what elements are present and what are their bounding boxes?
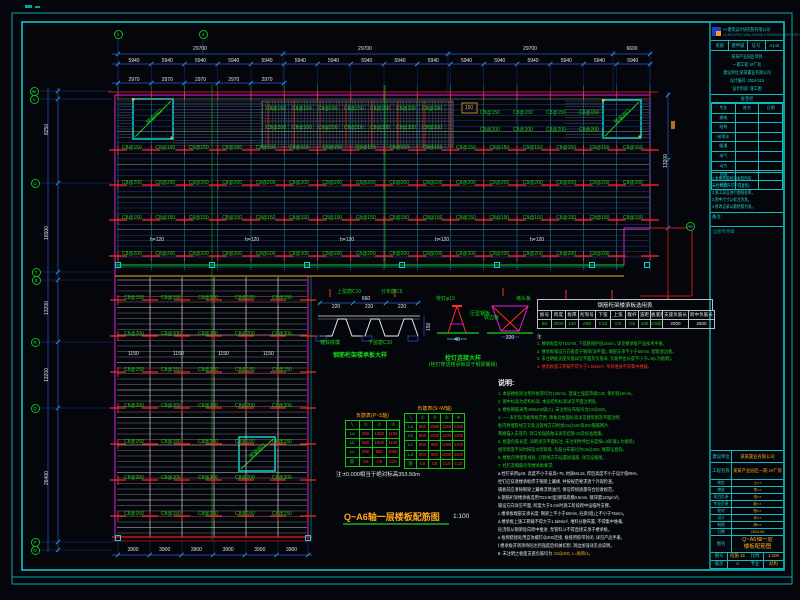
kv-value: 张×× — [732, 495, 783, 500]
sign-cell — [759, 151, 783, 161]
annotation-text: C8@150 — [579, 111, 599, 116]
title-block: ××建筑设计研究院有限公司 XX ARCHITECTURAL DESIGN & … — [711, 23, 783, 569]
annotation-text: C8@200 — [235, 476, 255, 481]
notice-line: 2.施工前应进行图纸会审。 — [712, 189, 772, 196]
annotation-text: C8@200 — [189, 252, 209, 257]
sign-cell: 姓名 — [735, 104, 759, 114]
annotation-text: 13200 — [45, 301, 50, 315]
grid-bubble: A6 — [686, 222, 695, 231]
note-line: 6. 楼板内预埋管线处, 沿管线方向设置加强筋, 详见设备图。 — [498, 454, 693, 462]
annotation-text: C8@150 — [122, 146, 142, 151]
sign-cell — [735, 113, 759, 123]
annotation-text: C8@150 — [272, 296, 292, 301]
table-cell: 1200 — [453, 432, 465, 441]
annotation-text: C8@200 — [489, 181, 509, 186]
annotation-text: C8@150 — [122, 216, 142, 221]
annotation-text: 5940 — [627, 59, 638, 64]
table-cell: 1050 — [373, 430, 387, 439]
annotation-text: 3900 — [127, 548, 138, 553]
kv-row: 校对钱×× — [711, 508, 783, 515]
annotation-text: C8@150 — [198, 440, 218, 445]
annotation-text: C8@200 — [124, 332, 144, 337]
table-cell: La — [346, 430, 360, 439]
annotation-text: C8@150 — [523, 146, 543, 151]
grid-bubble: R — [31, 338, 40, 347]
table-cell: 1150 — [453, 441, 465, 450]
note-line: f.楼承板开洞须待砼达到强度后机械切割, 洞边加强详见总说明。 — [498, 542, 693, 550]
kv-label: 设计 — [711, 515, 732, 521]
kv-value: 李×× — [732, 488, 783, 493]
annotation-text: 8250 — [45, 124, 50, 135]
table-cell: 桁架号 — [579, 311, 596, 320]
annotation-text: C8@150 — [222, 216, 242, 221]
annotation-text: C8@200 — [198, 332, 218, 337]
note-line: 4. 楼承板施工荷载不得大于1.5kN/m², 吊装堆放不得集中堆载。 — [537, 363, 721, 370]
table-cell: ② — [373, 421, 387, 430]
table-cell: 跨度 — [552, 311, 566, 320]
annotation-text: C8@200 — [122, 181, 142, 186]
note-line: c.楼承板端部支承长度: 钢梁上不小于50mm, 砼梁(墙)上不小于75mm。 — [498, 510, 693, 518]
annotation-text: 3900 — [223, 548, 234, 553]
bottom-cell-label: 专业 — [747, 561, 764, 568]
annotation-text: C8@200 — [356, 252, 376, 257]
annotation-text: C8@200 — [122, 252, 142, 257]
note-line: 1. 楼承板型号TD3-90, 下弦筋保护层15mm, 详见楼承板产品技术手册。 — [537, 340, 721, 347]
annotation-text: 栓钉φ19 — [436, 297, 455, 302]
table-cell: 950 — [373, 448, 387, 457]
annotation-text: C8@150 — [623, 146, 643, 151]
table-cell: 1000 — [441, 450, 453, 459]
kv-label: 项目负责 — [711, 494, 732, 500]
owner-row: 建设单位 某某置业有限公司 — [711, 451, 783, 463]
kv-label: 审核 — [711, 487, 732, 493]
note-line: 铺板前应清除钢梁上翼缘浮锈油污, 保证焊接质量符合验收规范。 — [498, 486, 693, 494]
note-line: 3. 楼板钢筋采用HRB400级(C), 未注明分布筋均为C8@250。 — [498, 406, 693, 414]
annotation-text: C8@150 — [222, 146, 242, 151]
sign-cell: 动力 — [712, 161, 736, 171]
annotation-text: C8@150 — [318, 107, 338, 112]
notice-lines: 1.本图纸版权归本院所有, 未经书面许可不得复制。2.施工前应进行图纸会审。3.… — [711, 173, 783, 213]
annotation-text: C8@150 — [590, 146, 610, 151]
notice-line: 3.图中尺寸以标注为准。 — [712, 196, 772, 203]
annotation-text: C8@200 — [556, 181, 576, 186]
table-cell: 1100 — [386, 439, 400, 448]
annotation-text: C8@200 — [289, 181, 309, 186]
sign-cell — [735, 142, 759, 152]
table-cell: 3000 — [552, 319, 566, 328]
annotation-text: C8@200 — [256, 181, 276, 186]
annotation-text: C8@150 — [370, 107, 390, 112]
kv-row: 专业负责赵×× — [711, 501, 783, 508]
table-cell: 800 — [417, 450, 429, 459]
stud-detail-subcaption: (栓钉穿透楼承板焊于钢梁翼缘) — [429, 361, 497, 368]
bottom-cell-label: 图号 — [711, 553, 728, 560]
table-cell: C8@200 — [651, 319, 663, 328]
annotation-text: C8@200 — [389, 252, 409, 257]
annotation-text: C8@150 — [155, 146, 175, 151]
kv-label: 日期 — [711, 529, 732, 535]
table-cell: 1150 — [441, 423, 453, 432]
table-cell: 850 — [359, 448, 373, 457]
grid-bubble: 4 — [199, 30, 208, 39]
annotation-text: C8@150 — [322, 146, 342, 151]
annotation-text: 29700 — [193, 47, 207, 52]
figure-name-line1: Q~A6轴一层 — [732, 537, 783, 544]
bottom-cell-value: A — [728, 561, 747, 568]
kv-rows: 审定王××审核李××项目负责张××专业负责赵××校对钱××设计孙××制图周××日… — [711, 480, 783, 536]
table-cell: 1000 — [429, 432, 441, 441]
figure-name-row: 图名 Q~A6轴一层 楼板配筋图 — [711, 536, 783, 553]
sign-cell — [759, 113, 783, 123]
note-line: 板内预埋管线交叉处沿管线方向附加C6@150宽500钢筋网片, — [498, 422, 693, 430]
annotation-text: 收边板 — [484, 316, 499, 321]
annotation-text: C8@150 — [623, 216, 643, 221]
annotation-text: C8@150 — [189, 216, 209, 221]
annotation-text: C8@150 — [396, 107, 416, 112]
annotation-text: C8@150 — [289, 146, 309, 151]
kv-row: 项目负责张×× — [711, 494, 783, 501]
annotation-text: 1150 — [128, 352, 139, 357]
annotation-text: 660 — [362, 297, 370, 302]
sign-cell: 给排水 — [712, 132, 736, 142]
annotation-text: C8@150 — [124, 512, 144, 517]
annotation-text: C8@150 — [546, 111, 566, 116]
annotation-text: C8@200 — [161, 332, 181, 337]
note-line: d.楼承板上施工荷载不得大于1.5kN/m², 堆料分散布置, 不得集中堆载, — [498, 518, 693, 526]
table-cell: ① — [359, 421, 373, 430]
company-logo-icon — [712, 27, 721, 36]
annotation-text: C8@200 — [289, 252, 309, 257]
annotation-text: 5940 — [594, 59, 605, 64]
annotation-text: 5940 — [428, 59, 439, 64]
table-cell: 1000 — [373, 439, 387, 448]
table-cell: 950 — [429, 441, 441, 450]
kv-value: 钱×× — [732, 509, 783, 514]
annotation-text: 220 — [332, 305, 340, 310]
table-cell: 筋 — [346, 457, 360, 466]
kv-row: 制图周×× — [711, 522, 783, 529]
annotation-text: C8@150 — [422, 107, 442, 112]
note-line: 8. 未注明之板面支座负筋均为 C8@200, L=板跨/4。 — [498, 550, 693, 558]
table-cell: Ld — [405, 450, 417, 459]
annotation-text: C8@200 — [222, 181, 242, 186]
annotation-text: C8@200 — [523, 252, 543, 257]
neg-table-title: 负筋表(P~S轴) — [345, 412, 400, 419]
annotation-text: C8@200 — [222, 252, 242, 257]
grid-bubble: N — [31, 546, 40, 555]
table-cell: ③ — [386, 421, 400, 430]
table-ticks — [566, 290, 668, 299]
annotation-text: 5940 — [527, 59, 538, 64]
annotation-text: C8@200 — [396, 126, 416, 131]
table-cell: 900 — [429, 450, 441, 459]
annotation-text: C8@200 — [480, 128, 500, 133]
annotation-text: 上弦筋C10 — [337, 290, 361, 295]
kv-label: 校对 — [711, 508, 732, 514]
annotation-text: 5940 — [295, 59, 306, 64]
annotation-text: 2970 — [228, 78, 239, 83]
table-cell: ╲ — [346, 421, 360, 430]
annotation-text: C8@200 — [155, 181, 175, 186]
annotation-text: C8@200 — [292, 126, 312, 131]
annotation-text: C8@150 — [423, 146, 443, 151]
drawing-scale: 1:100 — [453, 513, 469, 520]
table-cell: C10 — [386, 457, 400, 466]
annotation-text: 29700 — [523, 47, 537, 52]
annotation-text: C8@200 — [546, 128, 566, 133]
annotation-text: C8@200 — [389, 181, 409, 186]
kv-row: 日期2024.06 — [711, 529, 783, 536]
annotation-text: 5940 — [228, 59, 239, 64]
annotation-text: C8@150 — [198, 512, 218, 517]
annotation-text: C8@150 — [198, 368, 218, 373]
annotation-text: C8@150 — [124, 296, 144, 301]
table-cell: Lc — [346, 448, 360, 457]
sign-cell — [759, 142, 783, 152]
annotation-text: 5940 — [461, 59, 472, 64]
annotation-text: C8@150 — [456, 216, 476, 221]
annotation-text: C8@150 — [556, 146, 576, 151]
annotation-text: 5940 — [328, 59, 339, 64]
kv-label: 专业负责 — [711, 501, 732, 507]
annotation-text: 220 — [506, 336, 514, 341]
annotation-text: C8@200 — [272, 476, 292, 481]
table-cell: Lb — [405, 432, 417, 441]
neg-rebar-table: ╲①②③La95010501150Lb90010001100Lc85095010… — [345, 420, 400, 467]
annotation-text: 3900 — [191, 548, 202, 553]
annotation-text: C8@150 — [272, 512, 292, 517]
note-line: 注: — [537, 333, 721, 340]
annotation-text: C8@200 — [272, 404, 292, 409]
annotation-text: C8@150 — [456, 146, 476, 151]
project-info-line: 设计编号: 2024-015 — [715, 77, 780, 85]
note-line: a.栓钉采用φ19, 高度不小于波高+75, 材质ML15, 焊后高度不小于设计… — [498, 470, 693, 478]
grid-bubble: S — [32, 276, 41, 285]
sign-cell — [759, 132, 783, 142]
annotation-text: 5940 — [195, 59, 206, 64]
annotation-text: 下弦筋C10 — [368, 341, 392, 346]
note-line: 相邻跨度不同时按较大跨取值, 负筋分布筋均为C8@250, 端部设直钩。 — [498, 446, 693, 454]
table-cell: Lb — [346, 439, 360, 448]
table-cell: ② — [429, 414, 441, 423]
table-cell: 1100 — [453, 450, 465, 459]
annotation-text: C8@200 — [590, 181, 610, 186]
note-line: 铺设方向详见平面, 跨度大于3.0m时施工阶段跨中设临时支撑。 — [498, 502, 693, 510]
annotation-text: C8@150 — [256, 146, 276, 151]
annotation-text: 1150 — [173, 352, 184, 357]
selection-table-notes: 注:1. 楼承板型号TD3-90, 下弦筋保护层15mm, 详见楼承板产品技术手… — [537, 333, 737, 370]
annotation-text: 220 — [365, 305, 373, 310]
kv-row: 审核李×× — [711, 487, 783, 494]
annotation-text: 26400 — [45, 471, 50, 485]
table-cell: 板号 — [538, 311, 552, 320]
selection-table: 板号跨度板厚桁架号下弦上弦腹杆波距板底筋支座负筋长跨中负筋长B13000120A… — [537, 310, 715, 329]
annotation-text: C8@200 — [556, 252, 576, 257]
stamp-label: 出图专用章 — [713, 229, 734, 234]
annotation-text: C8@200 — [161, 476, 181, 481]
annotation-text: 3900 — [254, 548, 265, 553]
kv-value: 周×× — [732, 523, 783, 528]
table-cell: 波距 — [639, 311, 651, 320]
note-line: e.板侧搭接处用自攻螺钉@300连接, 板缝用胶带封闭, 详见产品手册。 — [498, 534, 693, 542]
annotation-text: C8@200 — [322, 181, 342, 186]
table-cell: Lc — [405, 441, 417, 450]
annotation-text: C8@150 — [161, 512, 181, 517]
table-cell: 1250 — [453, 423, 465, 432]
annotation-text: C8@150 — [389, 216, 409, 221]
notice-line: 4.修改记录以最终版为准。 — [712, 203, 772, 210]
annotation-text: C8@200 — [590, 252, 610, 257]
table-cell: C8 — [359, 457, 373, 466]
annotation-text: C8@200 — [256, 252, 276, 257]
table-cell: 腹杆 — [626, 311, 639, 320]
annotation-text: C8@150 — [198, 296, 218, 301]
annotation-text: 5940 — [128, 59, 139, 64]
annotation-text: C8@150 — [289, 216, 309, 221]
table-cell: ① — [417, 414, 429, 423]
project-info-line: 一期工程 1#厂房 — [715, 61, 780, 69]
sign-cell: 日期 — [759, 104, 783, 114]
bottom-cell: 图号结施-15 — [711, 553, 747, 561]
stamp-area: 出图专用章 — [711, 227, 783, 451]
project-row: 工程名称 某某产业园区一期 1#厂房 — [711, 463, 783, 480]
figure-name-line2: 楼板配筋图 — [732, 544, 783, 551]
annotation-text: C8@150 — [423, 216, 443, 221]
sign-section: 会签栏 专业姓名日期建筑结构给排水暖通电气动力总图经济 — [711, 95, 783, 173]
annotation-text: 5940 — [494, 59, 505, 64]
annotation-text: C8@200 — [198, 476, 218, 481]
annotation-text: C8@200 — [189, 181, 209, 186]
table-cell: 板底筋 — [651, 311, 663, 320]
annotation-text: h=120 — [150, 238, 164, 243]
annotation-text: C8@200 — [456, 252, 476, 257]
elevation-note: 注:±0.000相当于绝对标高353.50m — [336, 470, 420, 478]
kv-row: 审定王×× — [711, 480, 783, 487]
annotation-text: 40 — [454, 338, 460, 343]
annotation-text: 150 — [465, 106, 473, 111]
kv-value: 赵×× — [732, 502, 783, 507]
table-cell: 1050 — [386, 448, 400, 457]
table-cell: C8 — [417, 459, 429, 468]
sign-cell: 专业 — [712, 104, 736, 114]
annotation-text: C8@150 — [556, 216, 576, 221]
annotation-text: C8@150 — [161, 368, 181, 373]
annotation-text: C8@150 — [489, 216, 509, 221]
table-cell: ③ — [441, 414, 453, 423]
table-cell: 筋 — [405, 459, 417, 468]
annotation-text: 分布筋C6 — [381, 290, 402, 295]
table-cell: A90 — [579, 319, 596, 328]
annotation-text: C8@150 — [272, 368, 292, 373]
table-cell: 1100 — [441, 432, 453, 441]
bottom-cells: 图号结施-15比例1:100版次A专业结构 — [711, 553, 783, 569]
annotation-text: C8@150 — [292, 107, 312, 112]
note-line: 3. 未注明板支座负筋详见平面及负筋表, 负筋伸出长度不小于L/4(L为板跨)。 — [537, 355, 721, 362]
notes-header: 说明: — [498, 378, 710, 388]
note-line: 栓钉应穿透楼承板焊于钢梁上翼缘, 并按规范要求逐个外观检查。 — [498, 478, 693, 486]
annotation-text: C8@150 — [235, 296, 255, 301]
annotation-text: C8@200 — [266, 126, 286, 131]
annotation-text: C8@150 — [124, 440, 144, 445]
annotation-text: 2970 — [195, 78, 206, 83]
annotation-text: 5940 — [261, 59, 272, 64]
annotation-text: 2970 — [162, 78, 173, 83]
annotation-text: C8@200 — [579, 128, 599, 133]
bottom-cell-value: 结施-15 — [728, 553, 747, 560]
annotation-text: 5940 — [561, 59, 572, 64]
annotation-text: C8@200 — [523, 181, 543, 186]
annotation-text: 2970 — [261, 78, 272, 83]
notice-line: 未经书面许可不得复制。 — [712, 182, 772, 189]
annotation-text: h=120 — [435, 238, 449, 243]
certificate-cell: A142 — [766, 41, 783, 50]
table-cell: C8 — [429, 459, 441, 468]
note-line: 7. 栓钉及钢筋桁架楼承板要求: — [498, 462, 693, 470]
annotation-text: C8@150 — [523, 216, 543, 221]
annotation-text: 29700 — [358, 47, 372, 52]
table-cell: 1050 — [429, 423, 441, 432]
annotation-text: C8@200 — [423, 181, 443, 186]
table-cell: 上弦 — [611, 311, 626, 320]
annotation-text: C8@200 — [356, 181, 376, 186]
annotation-text: C8@150 — [480, 111, 500, 116]
deck-selection-table: 钢筋桁架楼承板选用表 板号跨度板厚桁架号下弦上弦腹杆波距板底筋支座负筋长跨中负筋… — [537, 299, 713, 329]
annotation-text: 220 — [398, 305, 406, 310]
project-info: 某某产业园区项目一期工程 1#厂房建设单位:某某置业有限公司设计编号: 2024… — [711, 51, 783, 95]
table-cell: 950 — [359, 430, 373, 439]
grid-bubble: Q — [31, 404, 40, 413]
annotation-text: C8@150 — [322, 216, 342, 221]
note-line: b.钢筋桁架楼承板选用TD3-90型(镀锌底模0.5mm, 镀锌量120g/m²… — [498, 494, 693, 502]
table-cell: B1 — [538, 319, 552, 328]
table-cell: 支座负筋长 — [663, 311, 689, 320]
project-info-line: 设计阶段: 施工图 — [715, 85, 780, 93]
project-info-line: 某某产业园区项目 — [715, 53, 780, 61]
annotation-text: 1150 — [218, 352, 229, 357]
annotation-text: C8@200 — [155, 252, 175, 257]
table-cell: 850 — [417, 441, 429, 450]
annotation-text: C8@150 — [344, 107, 364, 112]
certificate-cell: 证号 — [748, 41, 766, 50]
annotation-text: C8@200 — [124, 476, 144, 481]
cad-sheet: C8@150C8@150C8@150C8@150C8@150C8@150C8@1… — [0, 0, 800, 600]
kv-row: 设计孙×× — [711, 515, 783, 522]
table-cell: 900 — [359, 439, 373, 448]
annotation-text: C8@150 — [235, 440, 255, 445]
note-line: 两端锚入支座内, 洞口加强筋做法详见结施-02及标准图集。 — [498, 430, 693, 438]
sign-title: 会签栏 — [711, 95, 783, 103]
annotation-text: C8@150 — [256, 216, 276, 221]
company-name-en: XX ARCHITECTURAL DESIGN & RESEARCH INSTI… — [723, 33, 800, 37]
project-info-line: 建设单位:某某置业有限公司 — [715, 69, 780, 77]
annotation-text: C8@200 — [318, 126, 338, 131]
table-cell: 1150 — [386, 430, 400, 439]
sign-cell — [759, 123, 783, 133]
grid-bubble: U — [31, 179, 40, 188]
table-cell: 950 — [417, 423, 429, 432]
annotation-text: 6600 — [626, 47, 637, 52]
annotation-text: C8@200 — [235, 332, 255, 337]
table-cell: 120 — [566, 319, 579, 328]
table-cell: ╲ — [405, 414, 417, 423]
bottom-cell-value: 1:100 — [764, 553, 783, 560]
certificate-cell: 资质 — [711, 41, 729, 50]
annotation-text: C8@150 — [189, 146, 209, 151]
table-cell: C5 — [626, 319, 639, 328]
annotation-text: 13200 — [664, 154, 669, 168]
annotation-text: 5940 — [394, 59, 405, 64]
note-line: 5. 板面负筋长度, 间距详见平面标注, 未注明时伸出长度按L/4取值(L为板跨… — [498, 438, 693, 446]
